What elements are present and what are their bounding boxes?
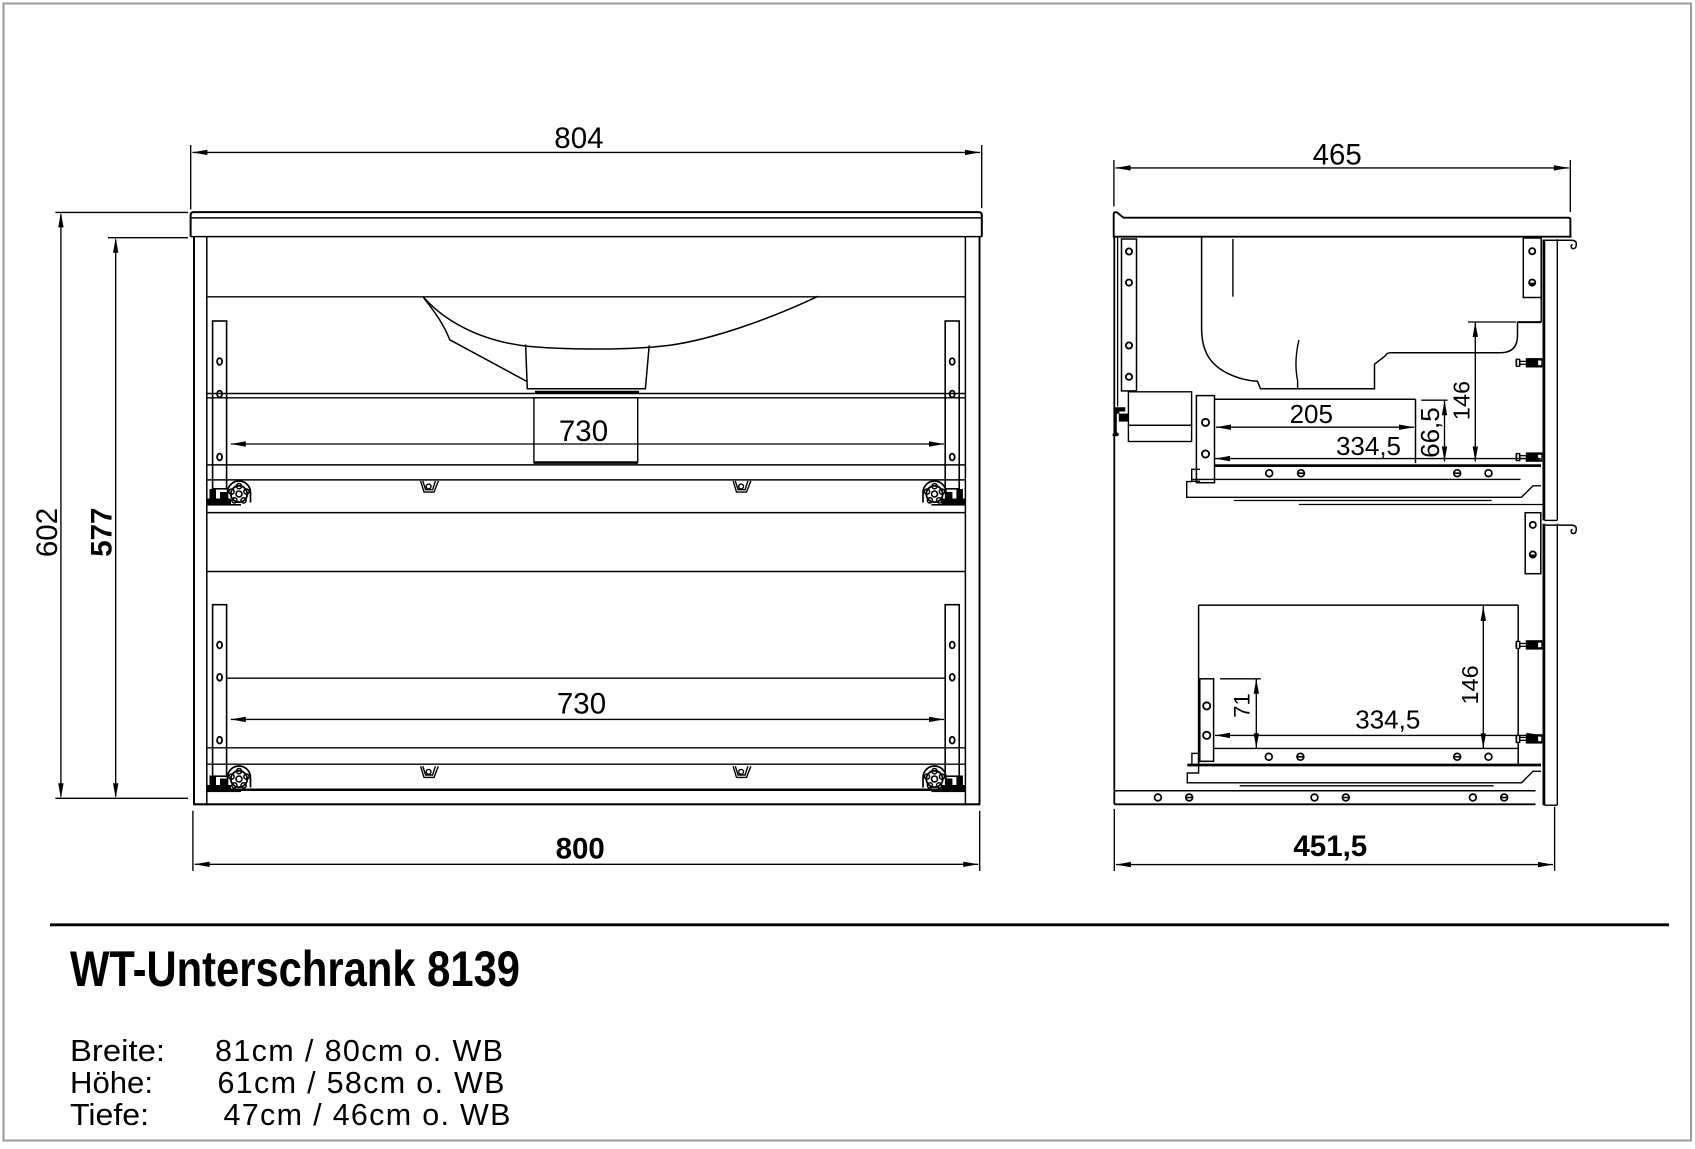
svg-text:81cm / 80cm o. WB: 81cm / 80cm o. WB: [215, 1034, 503, 1068]
svg-text:WT-Unterschrank 8139: WT-Unterschrank 8139: [70, 941, 520, 997]
svg-text:804: 804: [554, 122, 603, 155]
svg-text:205: 205: [1290, 399, 1333, 429]
svg-text:800: 800: [556, 832, 605, 865]
svg-text:146: 146: [1449, 381, 1475, 420]
svg-text:146: 146: [1457, 665, 1483, 704]
svg-text:66,5: 66,5: [1415, 407, 1445, 458]
svg-text:71: 71: [1230, 693, 1255, 717]
svg-text:Höhe:: Höhe:: [70, 1066, 153, 1100]
svg-text:47cm / 46cm o. WB: 47cm / 46cm o. WB: [224, 1098, 511, 1132]
svg-text:334,5: 334,5: [1336, 431, 1401, 461]
svg-text:Breite:: Breite:: [70, 1034, 165, 1068]
svg-text:577: 577: [86, 508, 119, 557]
svg-text:451,5: 451,5: [1293, 830, 1367, 863]
svg-text:334,5: 334,5: [1355, 705, 1420, 735]
svg-text:602: 602: [31, 508, 64, 557]
svg-text:730: 730: [557, 688, 606, 721]
svg-text:465: 465: [1313, 139, 1362, 172]
svg-text:730: 730: [559, 415, 608, 448]
svg-text:Tiefe:: Tiefe:: [70, 1098, 149, 1132]
svg-text:61cm / 58cm o. WB: 61cm / 58cm o. WB: [218, 1066, 505, 1100]
